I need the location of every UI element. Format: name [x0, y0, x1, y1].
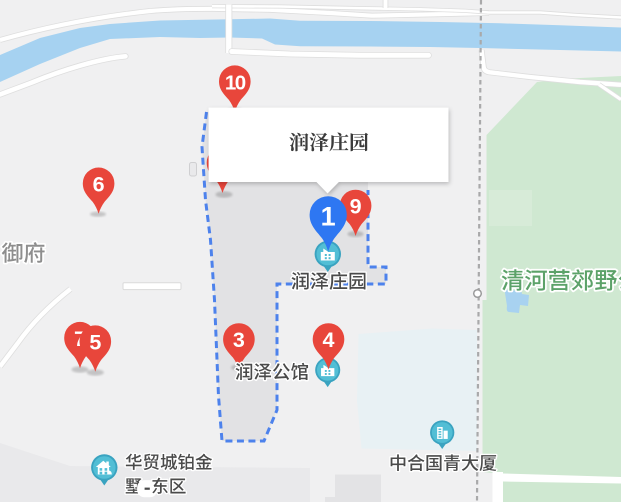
svg-text:10: 10 — [225, 71, 246, 94]
svg-text:9: 9 — [350, 195, 362, 219]
svg-text:6: 6 — [93, 172, 105, 196]
svg-text:3: 3 — [233, 328, 245, 352]
svg-text:5: 5 — [89, 330, 101, 354]
svg-text:1: 1 — [321, 201, 336, 231]
svg-text:4: 4 — [323, 328, 335, 352]
